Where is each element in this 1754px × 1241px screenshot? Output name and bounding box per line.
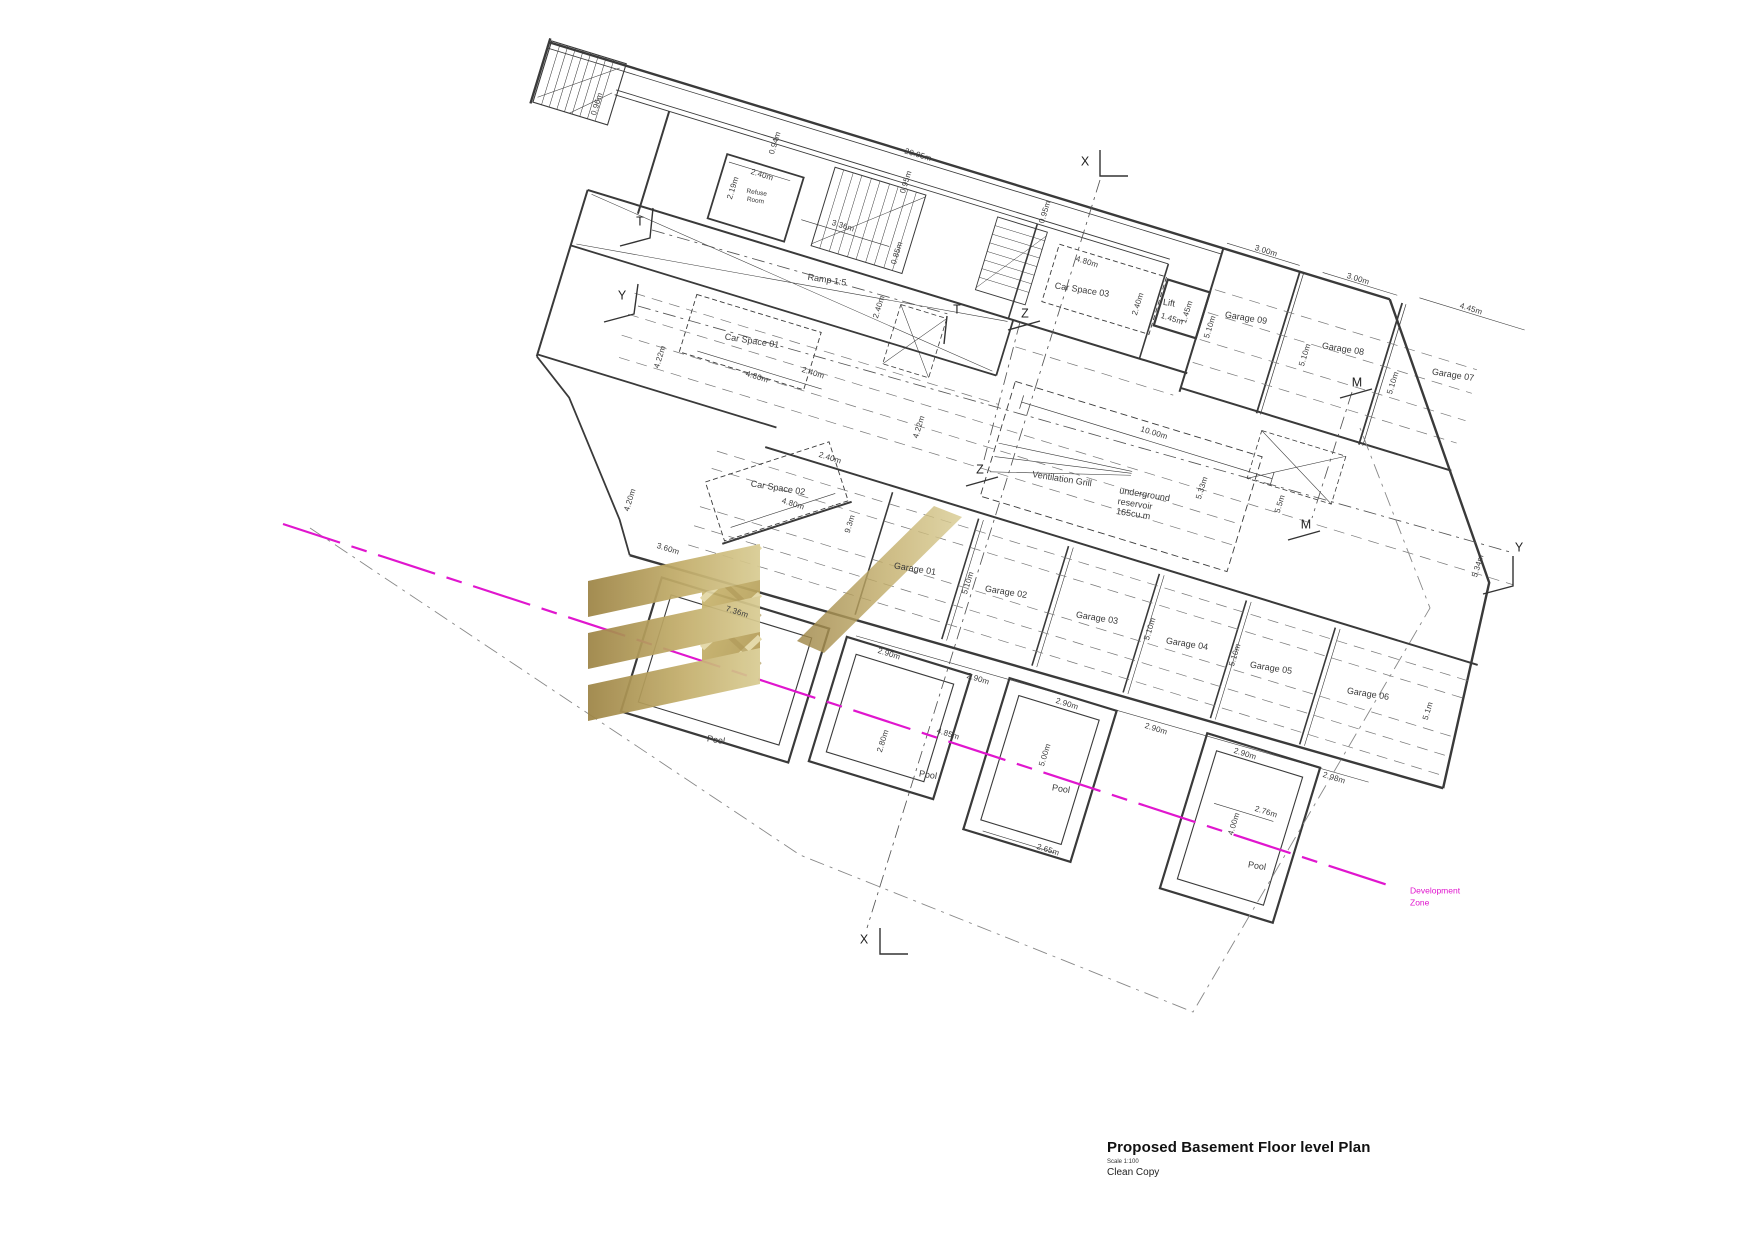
room-label: Car Space 03	[1054, 280, 1110, 299]
room-label: Garage 08	[1321, 340, 1365, 357]
section-marker: M	[1301, 518, 1311, 533]
section-marker: X	[1081, 155, 1089, 170]
dimension-label: 2.65m	[1036, 842, 1061, 858]
room-label: Ventilation Grill	[1032, 469, 1093, 489]
section-marker: Y	[618, 289, 626, 304]
dimension-label: 2.98m	[1322, 770, 1347, 786]
room-label: Garage 03	[1075, 609, 1119, 626]
dimension-label: 5.1m	[1421, 701, 1435, 722]
section-marker: Y	[1515, 541, 1523, 556]
dimension-label: 2.40m	[801, 365, 826, 381]
dimension-label: 4.22m	[652, 345, 668, 370]
dimension-label: 5.10m	[1202, 315, 1218, 340]
room-label: Pool	[1247, 859, 1266, 872]
dimension-label: 3.00m	[1254, 243, 1279, 259]
room-label: Garage 02	[984, 583, 1028, 600]
dimension-label: 2.40m	[818, 450, 843, 466]
dimension-label: 0.95m	[898, 170, 914, 195]
dimension-label: 0.95m	[1037, 200, 1053, 225]
room-label: Car Space 01	[724, 331, 780, 350]
section-marker: X	[860, 933, 868, 948]
dimension-label: 0.85m	[889, 241, 905, 266]
section-marker: Z	[976, 463, 984, 478]
dimension-label: 2.40m	[871, 295, 887, 320]
drawing-note: Clean Copy	[1107, 1167, 1370, 1178]
dimension-label: 7.36m	[725, 604, 750, 620]
dimension-label: 4.20m	[622, 488, 638, 513]
drawing-scale: Scale 1:100	[1107, 1159, 1370, 1165]
dimension-label: 2.90m	[877, 646, 902, 662]
room-label: Garage 04	[1165, 635, 1209, 652]
dimension-label: 2.90m	[966, 671, 991, 687]
room-label: Pool	[706, 733, 725, 746]
dimension-label: 5.33m	[1194, 476, 1210, 501]
dimension-label: 5.10m	[1227, 643, 1243, 668]
dimension-label: 10.00m	[1139, 424, 1168, 441]
dimension-label: 2.40m	[750, 167, 775, 183]
dimension-label: 4.80m	[1075, 254, 1100, 270]
floor-plan-page: { "title_block": { "title": "Proposed Ba…	[0, 0, 1754, 1241]
dimension-label: 5.10m	[960, 571, 976, 596]
dimension-label: 4.85m	[936, 726, 961, 742]
room-label: Garage 07	[1431, 366, 1475, 383]
room-label: Garage 06	[1346, 685, 1390, 702]
dimension-label: 3.00m	[1346, 271, 1371, 287]
dimension-label: 2.40m	[1130, 292, 1146, 317]
dimension-label: 5.5m	[1273, 494, 1287, 515]
development-zone-label: Development Zone	[1410, 885, 1460, 910]
section-marker: T	[636, 215, 644, 230]
dimension-label: 4.80m	[745, 369, 770, 385]
section-marker: T	[953, 303, 961, 318]
dimension-label: 20.95m	[903, 146, 932, 163]
title-block: Proposed Basement Floor level Plan Scale…	[1107, 1139, 1370, 1178]
dimension-label: 0.94m	[767, 131, 783, 156]
dimension-label: 2.90m	[1233, 746, 1258, 762]
dimension-label: 2.19m	[725, 176, 741, 201]
room-label: Pool	[918, 768, 937, 781]
dimension-label: 2.90m	[1055, 696, 1080, 712]
dimension-label: 9.3m	[843, 514, 857, 535]
dimension-label: 4.80m	[781, 496, 806, 512]
dimension-label: 4.22m	[911, 415, 927, 440]
dimension-label: 2.80m	[875, 729, 891, 754]
drawing-title: Proposed Basement Floor level Plan	[1107, 1139, 1370, 1156]
dimension-label: 5.00m	[1037, 743, 1053, 768]
dimension-label: 4.00m	[1226, 812, 1242, 837]
dimension-label: 1.45m	[1179, 300, 1195, 325]
section-marker: M	[1352, 376, 1362, 391]
room-label: Garage 01	[893, 560, 937, 577]
room-label: Garage 09	[1224, 309, 1268, 326]
room-label: Refuse Room	[745, 188, 768, 206]
dimension-label: 2.76m	[1254, 804, 1279, 820]
dimension-label: 5.34m	[1470, 554, 1486, 579]
dimension-label: 5.10m	[1142, 617, 1158, 642]
room-label: Ramp 1:5	[807, 272, 847, 289]
room-label: underground reservoir 165cu.m	[1115, 485, 1170, 524]
dimension-label: 4.45m	[1459, 301, 1484, 317]
room-label: Pool	[1051, 782, 1070, 795]
dimension-label: 2.90m	[1144, 721, 1169, 737]
room-label: Car Space 02	[750, 478, 806, 497]
dimension-label: 3.36m	[831, 218, 856, 234]
dimension-label: 5.10m	[1297, 343, 1313, 368]
section-marker: Z	[1021, 307, 1029, 322]
dimension-label: 3.60m	[656, 541, 681, 557]
dimension-label: 0.96m	[589, 92, 605, 117]
dimension-label: 5.10m	[1385, 371, 1401, 396]
annotation-labels: 0.96m0.94m20.95m2.40m2.19m3.36m0.95m0.95…	[0, 0, 1754, 1241]
room-label: Garage 05	[1249, 659, 1293, 676]
room-label: Lift	[1162, 297, 1176, 309]
